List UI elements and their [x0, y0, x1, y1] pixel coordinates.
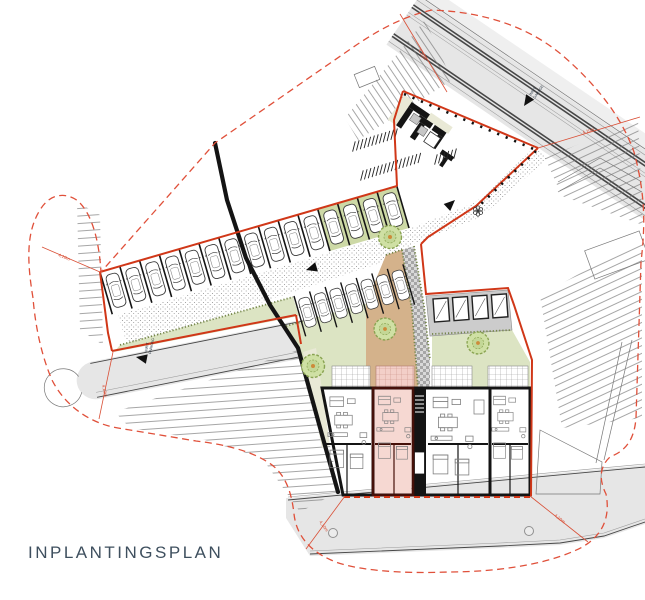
tree-icon: [467, 332, 489, 354]
car: [124, 266, 148, 303]
car: [242, 232, 266, 269]
drive-arrow-icon: [444, 196, 459, 211]
tree-icon: [374, 318, 396, 340]
car: [282, 220, 306, 257]
site-plan-canvas: INRIT GARAGE INRIT PARKING 4,10m 4,10m 4…: [0, 0, 645, 600]
car: [183, 249, 207, 286]
unit-4-furniture: [492, 396, 526, 459]
tree-icon: [379, 226, 402, 249]
unit-2-highlight: [375, 390, 412, 494]
tree-icon: [302, 355, 325, 378]
car: [163, 255, 187, 292]
bike-rack-row: [358, 153, 423, 181]
page-title: INPLANTINGSPLAN: [28, 543, 223, 562]
car: [203, 243, 227, 280]
svg-text:4,10m: 4,10m: [58, 252, 72, 262]
car: [262, 226, 286, 263]
manhole: [329, 529, 338, 538]
car: [143, 260, 167, 297]
site-plan-drawing: INRIT GARAGE INRIT PARKING 4,10m 4,10m 4…: [0, 0, 645, 600]
car: [104, 272, 128, 309]
manhole: [525, 527, 534, 536]
